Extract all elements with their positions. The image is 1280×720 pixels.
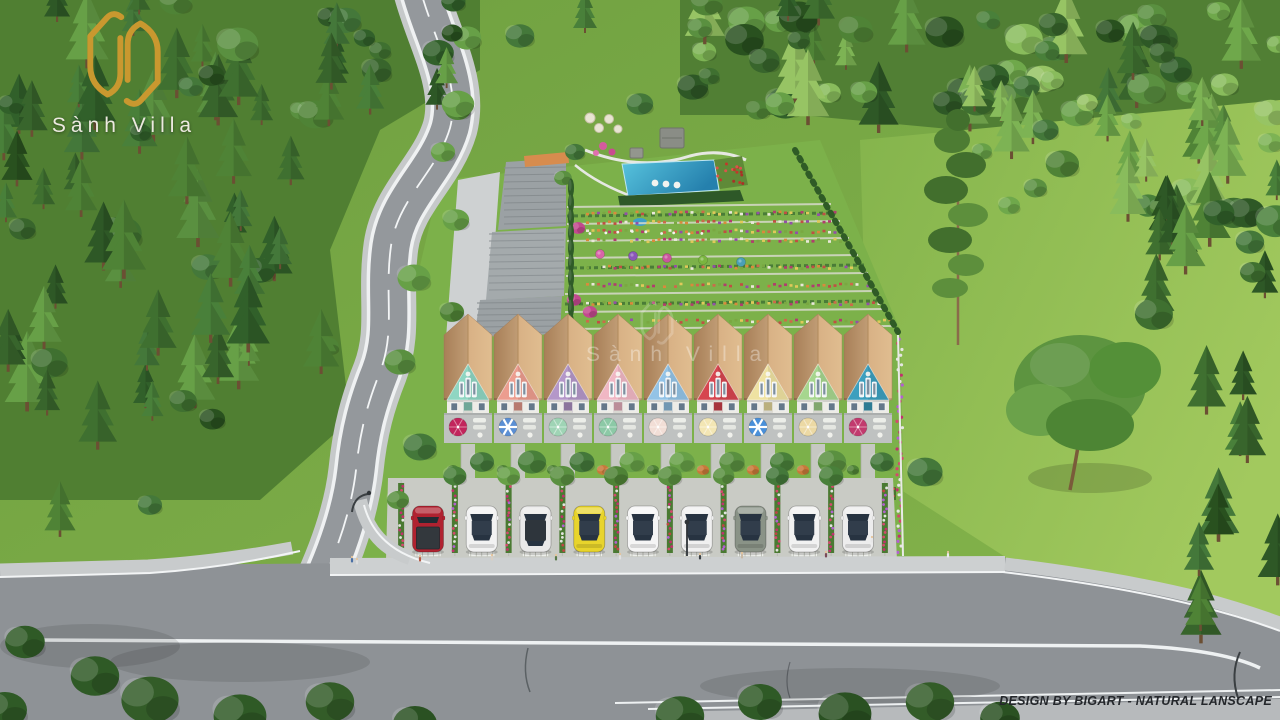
- patio-umbrella: [649, 418, 667, 436]
- parked-car: [411, 506, 445, 555]
- patio-umbrella: [499, 418, 517, 436]
- garden-pond: [633, 218, 647, 226]
- gable-vent: [566, 372, 571, 377]
- watermark-emblem-icon: [636, 300, 678, 346]
- villa-house: [494, 314, 542, 443]
- gable-vent: [816, 372, 821, 377]
- patio-umbrella: [549, 418, 567, 436]
- building-block: [498, 158, 566, 230]
- parked-cars: [411, 506, 875, 555]
- pedestrian: [356, 558, 358, 565]
- pedestrian: [699, 553, 701, 560]
- pedestrian: [619, 553, 621, 560]
- villa-house: [794, 314, 842, 443]
- parked-car: [572, 506, 606, 555]
- brand-logo-text: Sành Villa: [36, 114, 212, 138]
- row-buildings: [446, 152, 569, 338]
- pedestrian: [491, 554, 493, 561]
- pedestrian: [555, 554, 557, 561]
- gable-vent: [866, 372, 871, 377]
- lamp-head: [685, 520, 690, 525]
- pool-lounger: [674, 182, 681, 189]
- patio-umbrella: [749, 418, 767, 436]
- villa-house: [444, 314, 492, 443]
- flower-strip: [559, 483, 565, 553]
- parked-car: [465, 506, 499, 555]
- parked-car: [680, 506, 714, 555]
- aerial-site-render: Sành Villa Sành Villa DESIGN BY BIGART -…: [0, 0, 1280, 720]
- parked-car: [734, 506, 768, 555]
- gable-vent: [716, 372, 721, 377]
- patio-umbrella: [799, 418, 817, 436]
- patio-umbrella: [699, 418, 717, 436]
- parked-car: [519, 506, 553, 555]
- gable-vent: [516, 372, 521, 377]
- parked-car: [787, 506, 821, 555]
- gazebo: [630, 148, 643, 158]
- pedestrian: [825, 551, 827, 558]
- villa-house: [594, 314, 642, 443]
- parked-car: [626, 506, 660, 555]
- villa-house: [744, 314, 792, 443]
- pool-lounger: [652, 180, 659, 187]
- patio-umbrella: [849, 418, 867, 436]
- swimming-pool: [622, 160, 719, 196]
- pedestrian: [351, 556, 353, 563]
- pedestrian: [871, 536, 873, 543]
- parked-car: [841, 506, 875, 555]
- villa-house: [844, 314, 892, 443]
- pedestrian: [741, 552, 743, 559]
- pedestrian: [947, 551, 949, 558]
- gable-vent: [666, 372, 671, 377]
- gable-vent: [766, 372, 771, 377]
- sidewalk: [330, 556, 1005, 574]
- gable-vent: [466, 372, 471, 377]
- villa-house: [544, 314, 592, 443]
- pool-lounger: [663, 181, 670, 188]
- lamp-head: [367, 491, 371, 495]
- villa-house: [694, 314, 742, 443]
- center-watermark: Sành Villa: [586, 343, 770, 367]
- gable-vent: [616, 372, 621, 377]
- design-credit: DESIGN BY BIGART - NATURAL LANSCAPE: [999, 694, 1272, 708]
- pedestrian: [419, 555, 421, 562]
- brand-logo: Sành Villa: [36, 8, 212, 138]
- patio-umbrella: [449, 418, 467, 436]
- brand-emblem-icon: [78, 8, 170, 110]
- patio-umbrella: [599, 418, 617, 436]
